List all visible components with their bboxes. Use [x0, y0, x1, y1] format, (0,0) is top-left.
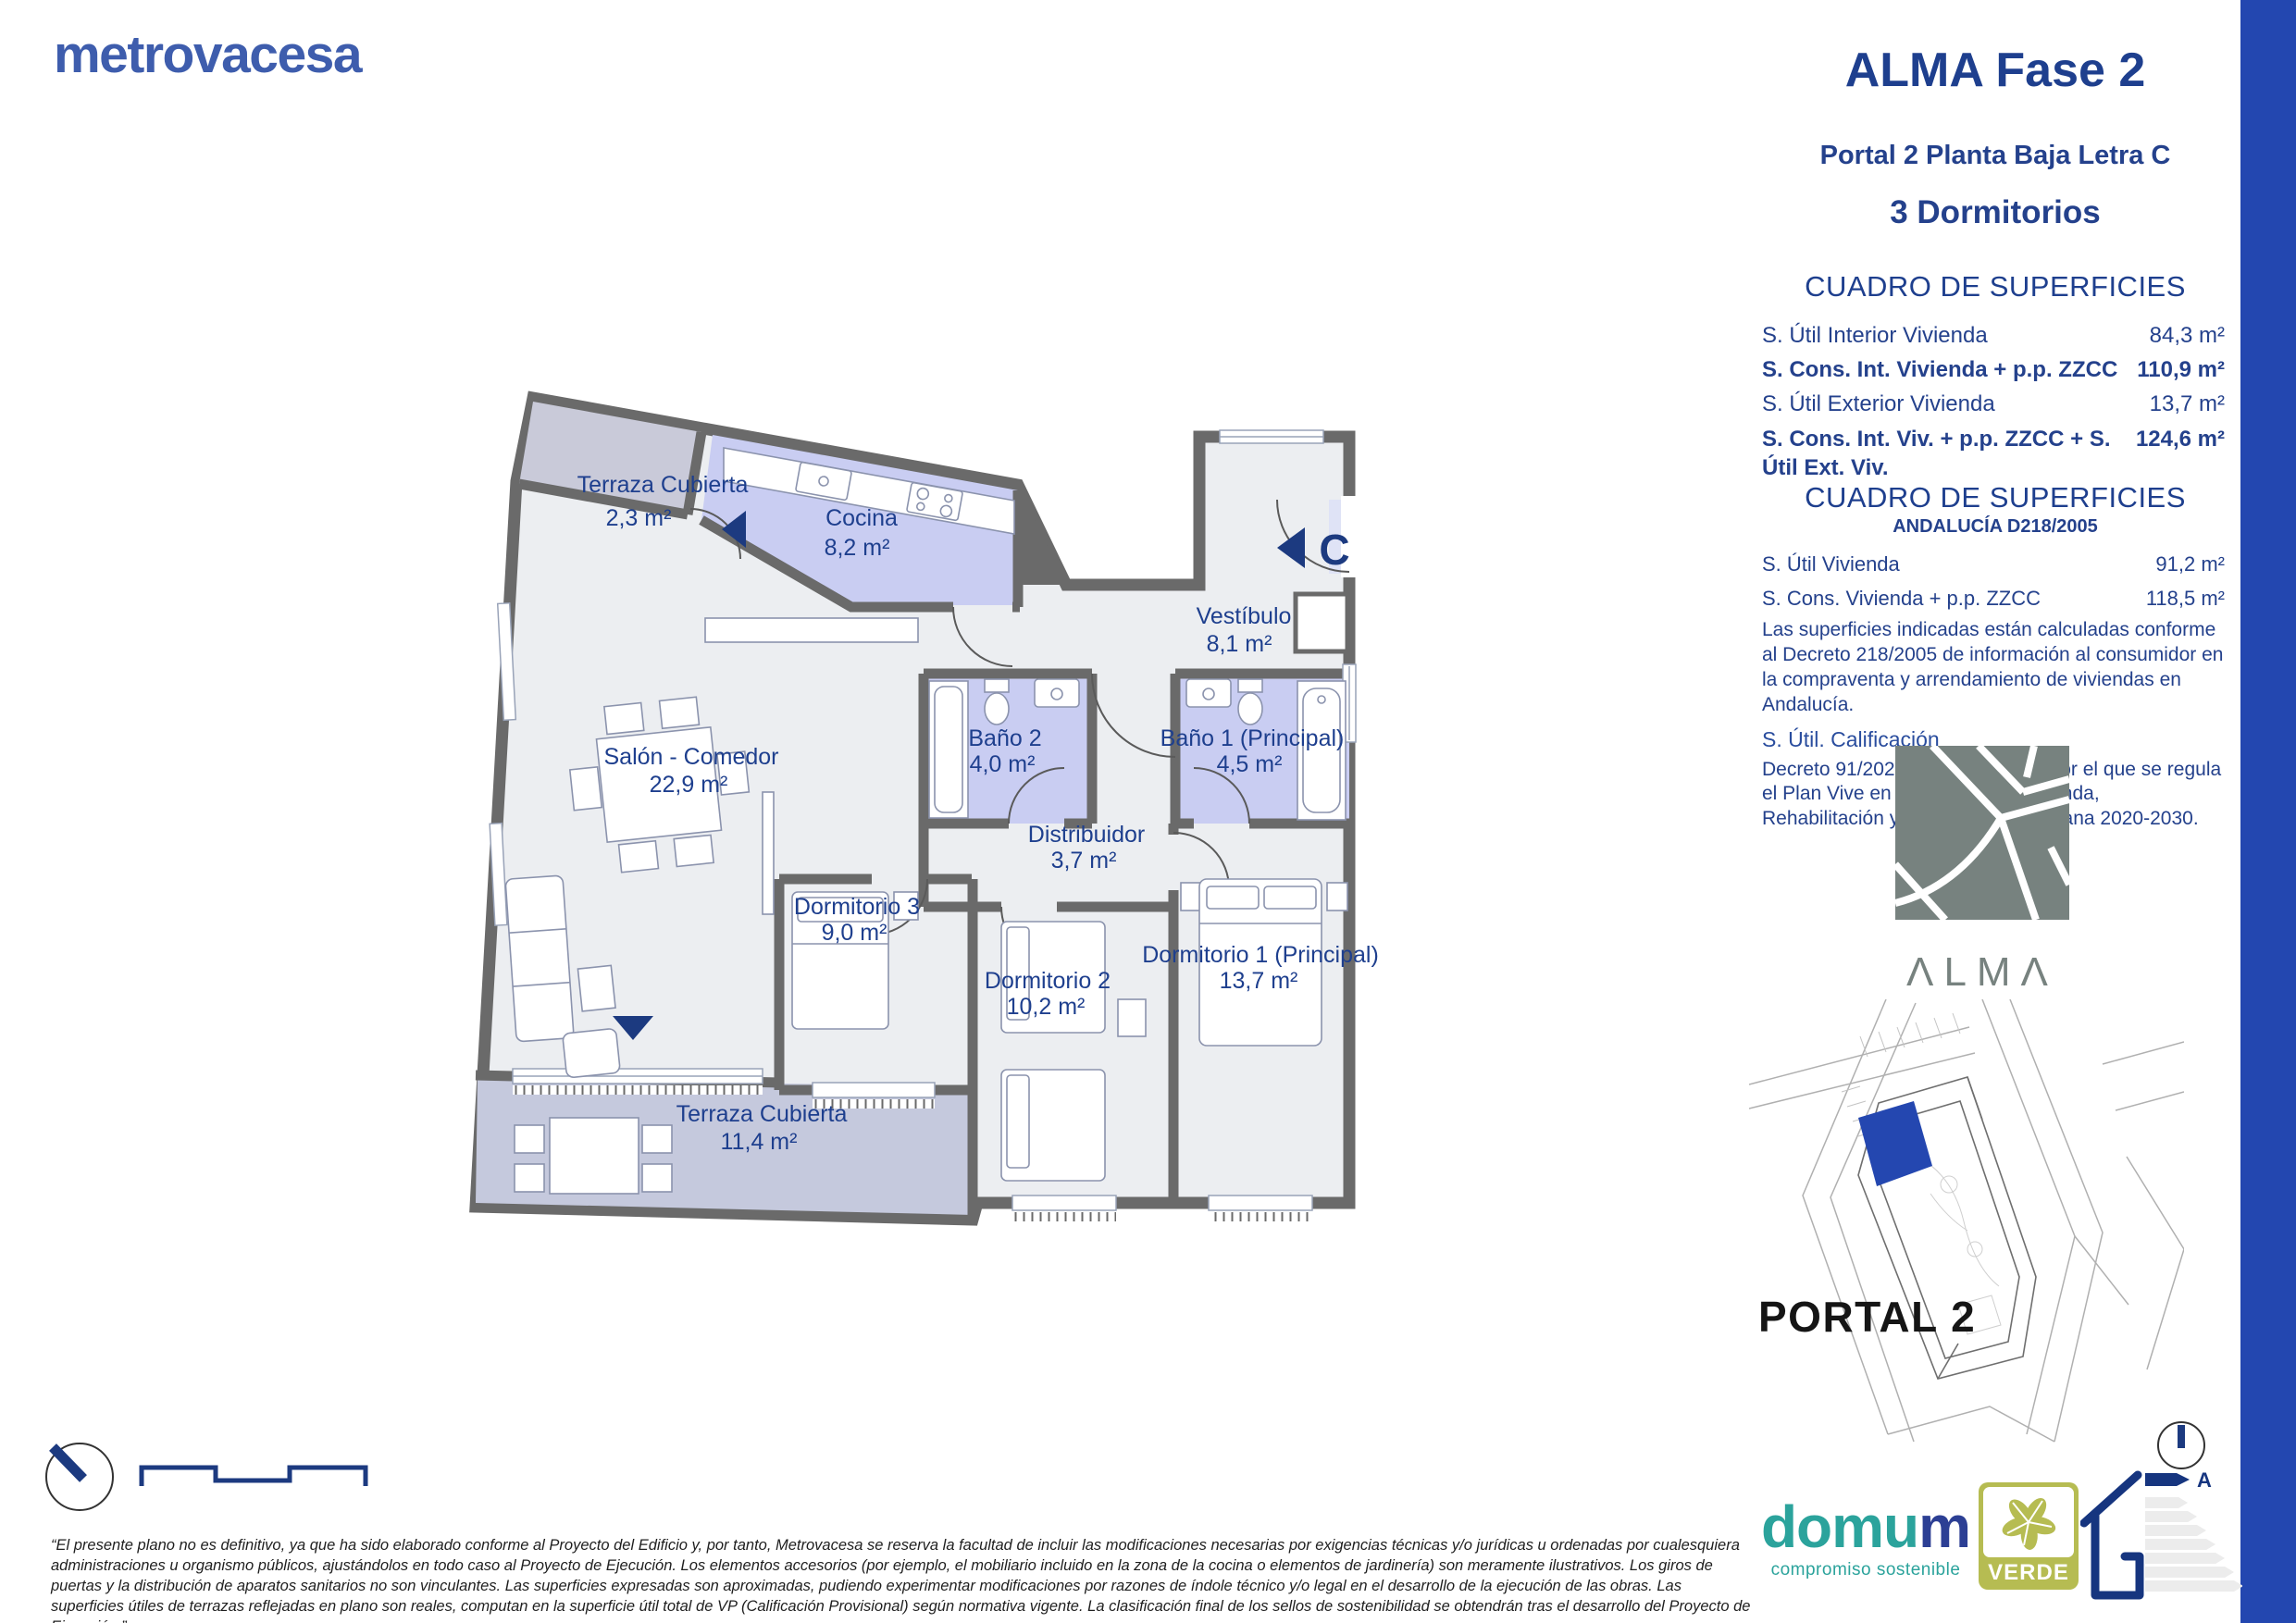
- row-label: S. Útil Vivienda: [1762, 551, 2144, 577]
- room-area: 9,0 m²: [822, 920, 887, 946]
- row-label: S. Cons. Vivienda + p.p. ZZCC: [1762, 586, 2135, 612]
- entrance-letter: C: [1319, 526, 1349, 574]
- room-area: 22,9 m²: [650, 772, 728, 798]
- table-row: S. Útil Interior Vivienda 84,3 m²: [1758, 318, 2232, 353]
- table-row: S. Útil Vivienda 91,2 m²: [1758, 547, 2232, 581]
- decreto-note: Las superficies indicadas están calculad…: [1758, 614, 2232, 722]
- bedroom1-window: [1209, 1196, 1312, 1210]
- energy-rating-letter: A: [2197, 1468, 2212, 1492]
- north-compass-icon: [37, 1436, 126, 1516]
- terrace-sill-hatch: [513, 1085, 763, 1095]
- room-name: Salón - Comedor: [604, 744, 779, 770]
- room-area: 3,7 m²: [1051, 848, 1117, 873]
- bedroom3-window: [813, 1083, 935, 1097]
- room-name: Dormitorio 3: [794, 894, 920, 920]
- domum-wordmark-start: domu: [1761, 1493, 1918, 1560]
- energy-scale-chevrons: [2145, 1497, 2242, 1592]
- right-accent-bar: [2240, 0, 2296, 1623]
- sideboard: [705, 618, 918, 642]
- site-streets: [1749, 999, 2184, 1442]
- energy-rating-icon: A: [2080, 1466, 2242, 1604]
- room-area: 2,3 m²: [606, 505, 672, 531]
- room-name: Baño 2: [968, 725, 1041, 751]
- domum-logo: domum compromiso sostenible: [1756, 1497, 1975, 1580]
- row-label: S. Cons. Int. Viv. + p.p. ZZCC + S. Útil…: [1762, 425, 2125, 482]
- table-row: S. Cons. Vivienda + p.p. ZZCC 118,5 m²: [1758, 581, 2232, 615]
- domum-wordmark-end: m: [1918, 1493, 1970, 1560]
- row-label: S. Útil Interior Vivienda: [1762, 321, 2139, 350]
- surfaces-table: CUADRO DE SUPERFICIES S. Útil Interior V…: [1758, 270, 2232, 485]
- verde-certification-badge: VERDE: [1979, 1482, 2079, 1590]
- bedroom2-sill-hatch: [1012, 1212, 1116, 1221]
- floor-plan: C Terraza Cubierta 2,3 m² Cocina 8,2 m² …: [453, 389, 1397, 1235]
- alma-wordmark: ΛLMΛ: [1888, 949, 2077, 996]
- room-name: Vestíbulo: [1197, 603, 1292, 629]
- bedroom1-sill-hatch: [1209, 1212, 1312, 1221]
- energy-house-outline: [2084, 1475, 2140, 1595]
- energy-rating-arrow: [2145, 1473, 2190, 1486]
- room-name: Baño 1 (Principal): [1160, 725, 1345, 751]
- unit-location-highlight: [1858, 1101, 1932, 1186]
- verde-leaf-icon: [1996, 1492, 2061, 1553]
- row-value: 118,5 m²: [2146, 586, 2225, 612]
- room-area: 11,4 m²: [721, 1129, 798, 1155]
- row-value: 110,9 m²: [2137, 355, 2225, 384]
- legal-disclaimer: “El presente plano no es definitivo, ya …: [51, 1536, 1758, 1623]
- room-name: Terraza Cubierta: [577, 472, 749, 498]
- scale-bar: [139, 1460, 379, 1490]
- row-value: 84,3 m²: [2150, 321, 2225, 350]
- row-label: S. Útil Exterior Vivienda: [1762, 390, 2139, 418]
- table-row: S. Cons. Int. Viv. + p.p. ZZCC + S. Útil…: [1758, 422, 2232, 485]
- domum-wordmark: domum: [1756, 1497, 1975, 1556]
- unit-subtitle: Portal 2 Planta Baja Letra C: [1758, 141, 2232, 171]
- domum-tagline: compromiso sostenible: [1756, 1560, 1975, 1580]
- room-name: Cocina: [825, 505, 898, 531]
- room-name: Dormitorio 2: [985, 968, 1111, 994]
- room-name: Dormitorio 1 (Principal): [1142, 942, 1379, 968]
- room-area: 13,7 m²: [1220, 968, 1298, 994]
- row-label: S. Cons. Int. Vivienda + p.p. ZZCC: [1762, 355, 2126, 384]
- room-area: 8,2 m²: [825, 535, 890, 561]
- page-title: ALMA Fase 2: [1758, 43, 2232, 98]
- room-area: 10,2 m²: [1007, 994, 1086, 1020]
- alma-map-logo: [1895, 746, 2069, 920]
- surfaces-table-title: CUADRO DE SUPERFICIES: [1758, 481, 2232, 514]
- room-area: 8,1 m²: [1207, 631, 1272, 657]
- metrovacesa-logo: metrovacesa: [54, 24, 361, 85]
- room-name: Terraza Cubierta: [676, 1101, 848, 1127]
- row-value: 124,6 m²: [2136, 425, 2225, 453]
- room-area: 4,5 m²: [1217, 751, 1283, 777]
- portal-label: PORTAL 2: [1758, 1292, 1976, 1342]
- site-plan: [1749, 999, 2184, 1453]
- room-area: 4,0 m²: [970, 751, 1036, 777]
- surfaces-table-subtitle: ANDALUCÍA D218/2005: [1758, 516, 2232, 538]
- vestibule-closet: [1296, 594, 1347, 651]
- surfaces-table-title: CUADRO DE SUPERFICIES: [1758, 270, 2232, 304]
- bedrooms-label: 3 Dormitorios: [1758, 194, 2232, 231]
- tv-unit: [763, 792, 774, 914]
- table-row: S. Cons. Int. Vivienda + p.p. ZZCC 110,9…: [1758, 353, 2232, 387]
- row-value: 13,7 m²: [2150, 390, 2225, 418]
- bedroom2-window: [1012, 1196, 1116, 1210]
- row-value: 91,2 m²: [2155, 551, 2225, 577]
- plan-sheet: metrovacesa ALMA Fase 2 Portal 2 Planta …: [0, 0, 2296, 1623]
- table-row: S. Útil Exterior Vivienda 13,7 m²: [1758, 387, 2232, 421]
- verde-label: VERDE: [1979, 1560, 2079, 1586]
- room-name: Distribuidor: [1028, 822, 1145, 848]
